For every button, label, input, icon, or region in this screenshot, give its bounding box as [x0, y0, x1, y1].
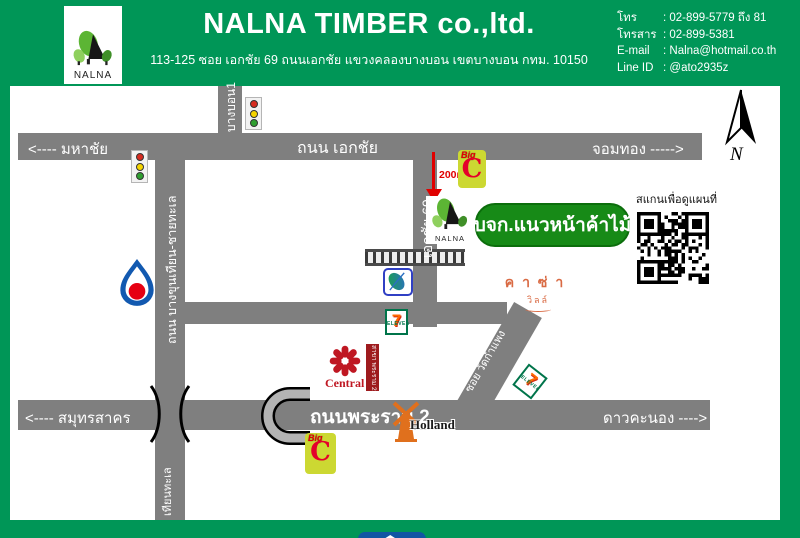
casa-ville-label: คาซ่า วิลล์: [488, 272, 588, 312]
traffic-light-icon-bangkhunthian: [131, 150, 148, 183]
compass-north-icon: N: [710, 88, 770, 164]
contact-email: E-mail : Nalna@hotmail.co.th: [617, 43, 797, 60]
seven-eleven-icon-1: 7 ELEVEn: [385, 309, 408, 335]
company-title: NALNA TIMBER co.,ltd.: [130, 8, 608, 41]
central-icon: Central สาขา พระราม 2: [325, 344, 379, 391]
qr-code: [637, 212, 709, 284]
nalna-marker-wordmark: NALNA: [435, 234, 465, 243]
qr-caption: สแกนเพื่อดูแผนที่: [636, 190, 746, 208]
nalna-leaf-icon: [429, 196, 471, 234]
compass-letter: N: [729, 144, 744, 164]
nalna-map-marker: NALNA: [426, 196, 474, 244]
railway-crossing-icon: [365, 249, 465, 266]
contact-block: โทร : 02-899-5779 ถึง 81 โทรสาร : 02-899…: [617, 10, 797, 76]
label-samutsakhon: <---- สมุทรสาคร: [25, 406, 131, 430]
ptt-gas-station-icon: [118, 258, 156, 308]
contact-tel: โทร : 02-899-5779 ถึง 81: [617, 10, 797, 27]
bigc-icon-rama2: Big C: [305, 433, 336, 474]
u-turn-icon: [268, 394, 310, 438]
contact-line-id: Line ID : @ato2935z: [617, 60, 797, 77]
bigc-icon-ekachai: Big C: [458, 150, 486, 188]
central-branch-banner: สาขา พระราม 2: [366, 344, 379, 391]
label-mahachai: <---- มหาชัย: [28, 137, 108, 161]
label-bangkhunthian: ถนน บางขุนเทียน-ชายทะเล: [162, 174, 182, 344]
homepro-icon: Home Pro: [358, 532, 426, 538]
map-canvas: <---- มหาชัย ถนน เอกชัย จอมทอง -----> บา…: [10, 86, 780, 520]
logo-wordmark: NALNA: [74, 70, 112, 81]
distance-arrow: [432, 152, 435, 190]
company-name-box: บจก.แนวหน้าค้าไม้: [475, 203, 630, 247]
traffic-light-icon-bangbon: [245, 97, 262, 130]
label-thianthale: เทียนทะเล: [159, 444, 177, 516]
bridge-mark-left: [151, 386, 159, 442]
title-block: NALNA TIMBER co.,ltd. 113-125 ซอย เอกชัย…: [130, 8, 608, 70]
label-dao-khanong: ดาวคะนอง ---->: [603, 406, 707, 430]
label-chomthong: จอมทอง ----->: [592, 137, 684, 161]
bridge-mark-right: [181, 386, 189, 442]
holland-icon: Holland: [388, 401, 458, 443]
tesco-lotus-icon: [383, 268, 413, 296]
nalna-leaf-icon: [70, 28, 116, 70]
flyer: NALNA NALNA TIMBER co.,ltd. 113-125 ซอย …: [0, 0, 800, 538]
contact-fax: โทรสาร : 02-899-5381: [617, 27, 797, 44]
company-logo: NALNA: [64, 6, 122, 84]
label-bangbon1: บางบอน1: [221, 88, 240, 132]
casa-underline: [525, 307, 551, 312]
label-thanon-ekachai: ถนน เอกชัย: [297, 136, 378, 161]
company-address: 113-125 ซอย เอกชัย 69 ถนนเอกชัย แขวงคลอง…: [130, 50, 608, 70]
header: NALNA NALNA TIMBER co.,ltd. 113-125 ซอย …: [0, 0, 800, 86]
central-flower-icon: [326, 344, 364, 378]
